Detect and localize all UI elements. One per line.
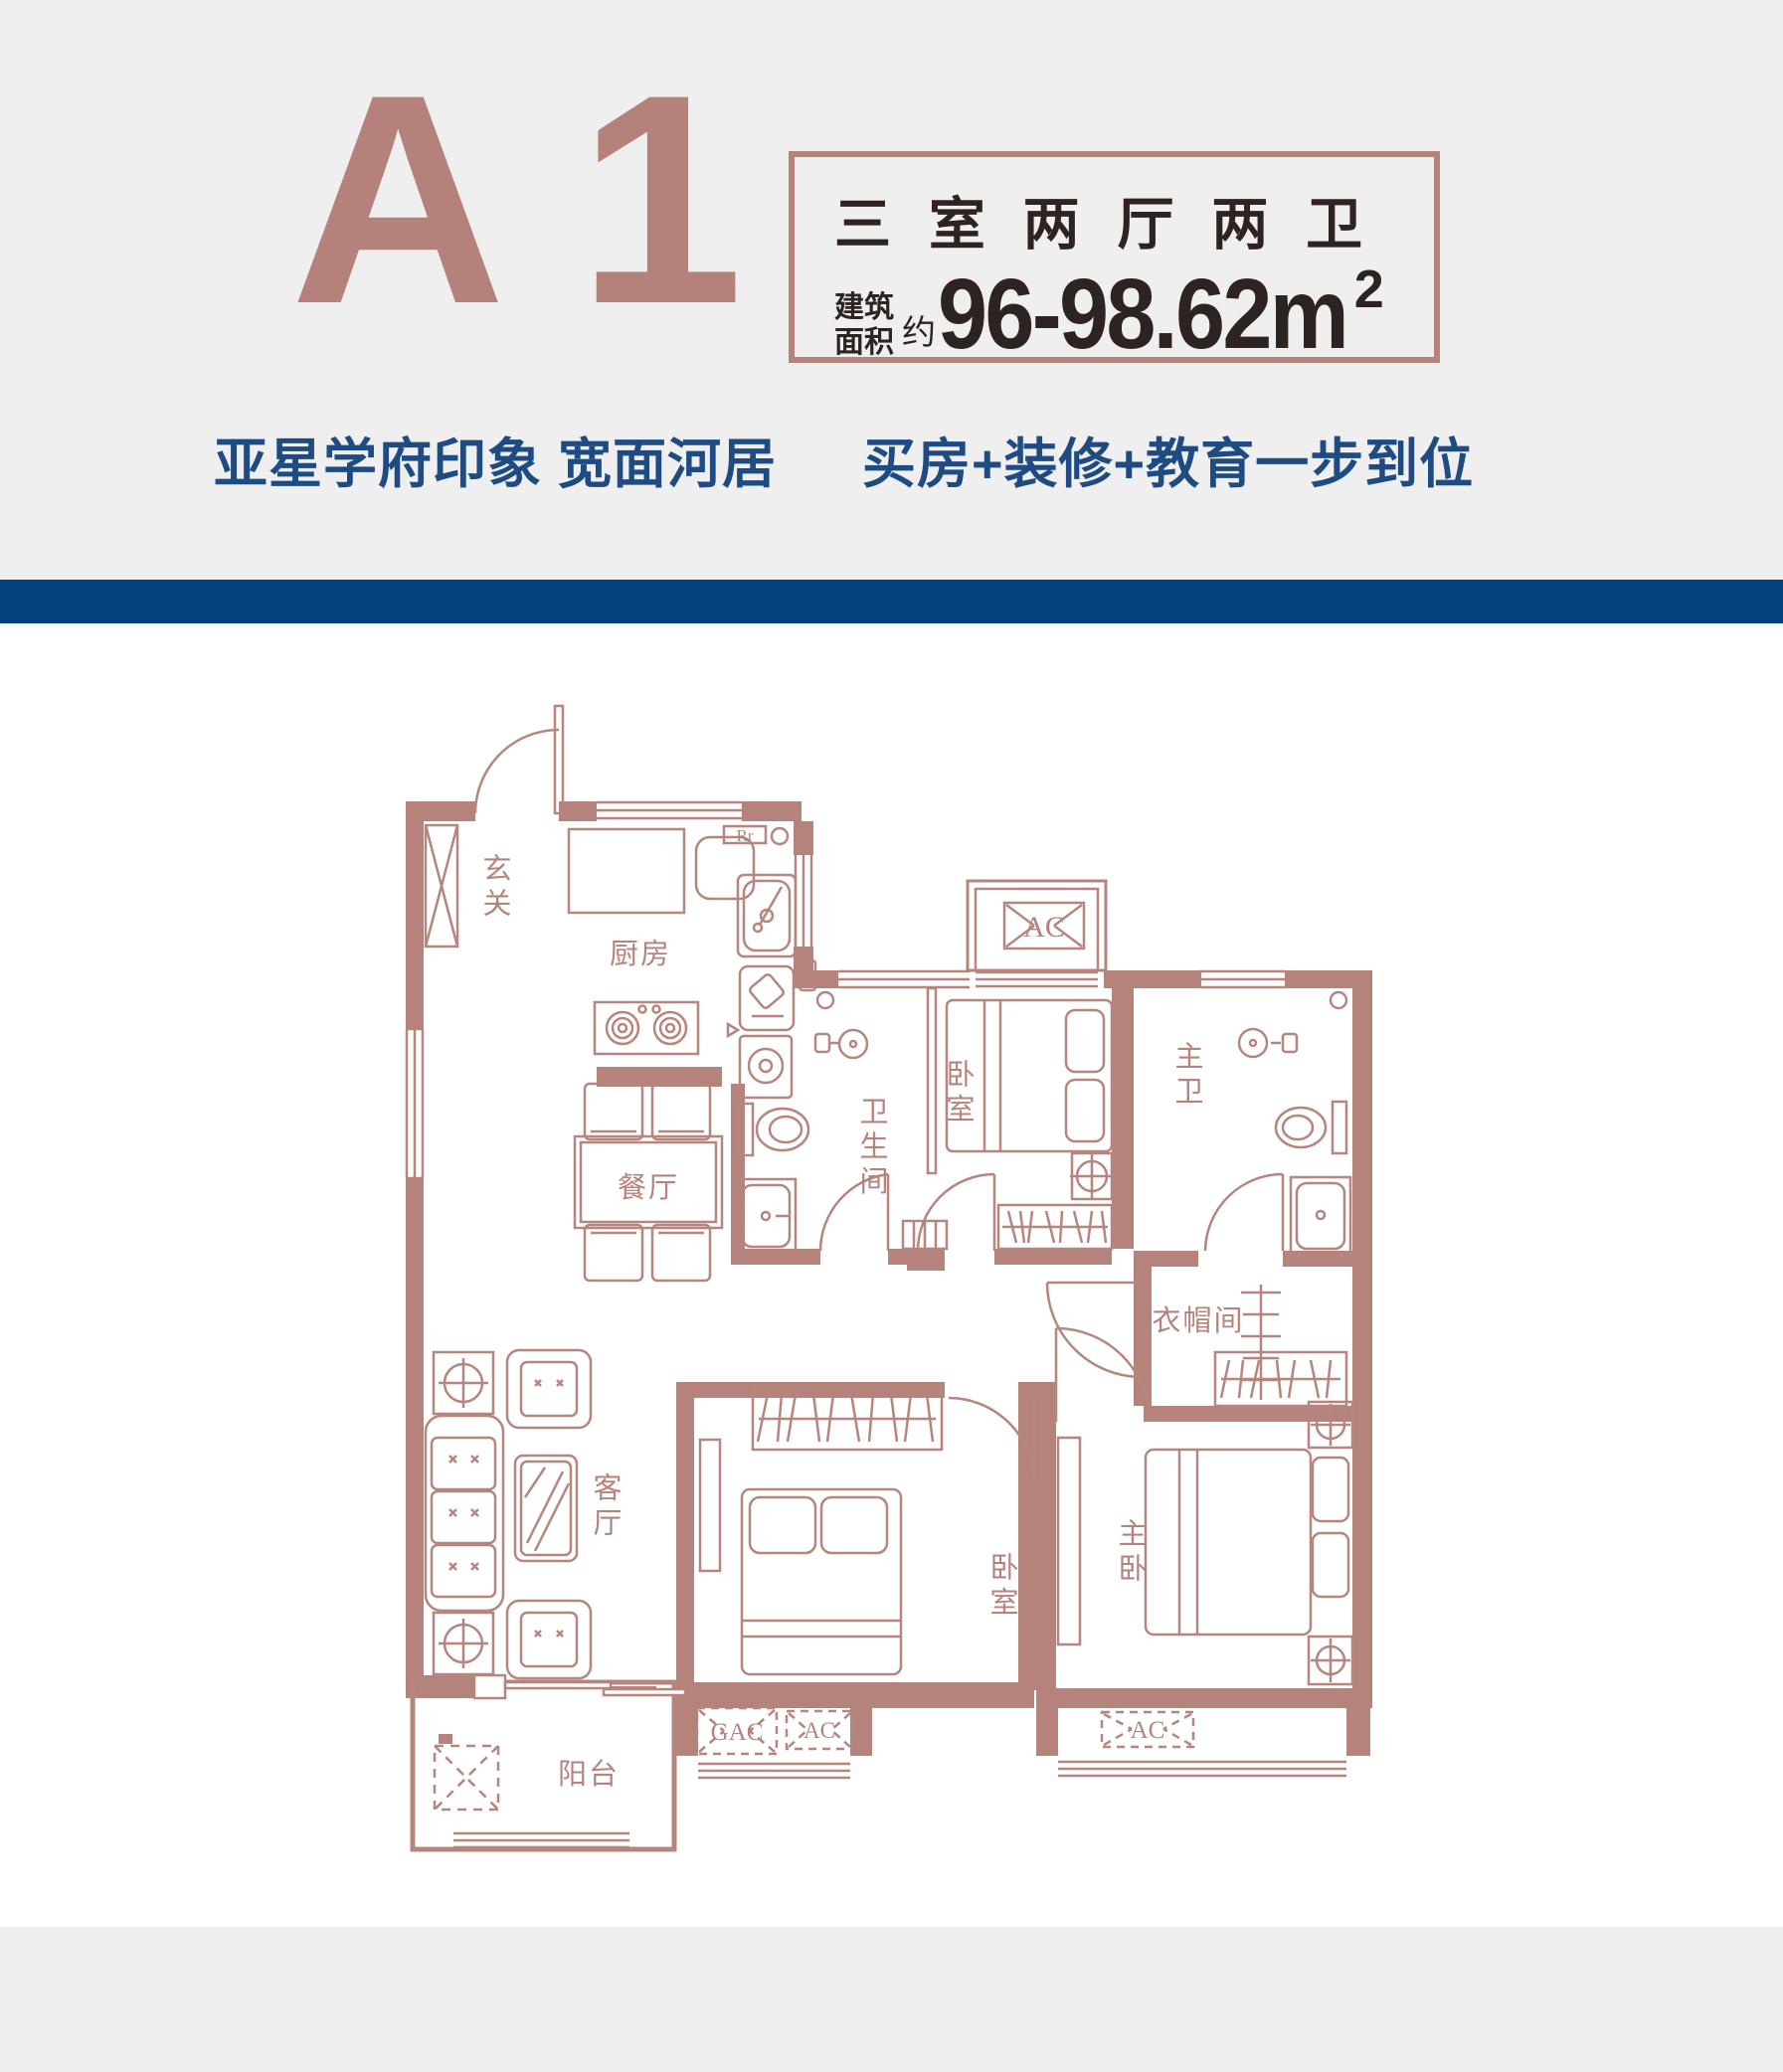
room-label-living: 客厅 — [584, 1472, 625, 1542]
ac-mid-label: AC — [803, 1718, 835, 1743]
tagline-right: 买房+装修+教育一步到位 — [862, 420, 1474, 498]
floor-plan-area: AC GAC AC AC Rr 玄关 厨房 餐厅 卫生间 卧室 主卫 衣帽间 客… — [0, 623, 1783, 1927]
ac-right-label: AC — [1131, 1717, 1165, 1744]
room-label-bathroom: 卫生间 — [850, 1097, 892, 1201]
floor-plan-svg: AC GAC AC AC Rr — [0, 623, 1783, 1927]
area-line: 建筑 面积 约 96-98.62m 2 — [834, 262, 1434, 360]
tagline-left: 亚星学府印象 宽面河居 — [214, 420, 777, 498]
room-label-entry: 玄关 — [473, 853, 515, 923]
area-superscript: 2 — [1354, 262, 1384, 316]
spec-box: 三 室 两 厅 两 卫 建筑 面积 约 96-98.62m 2 — [789, 151, 1440, 363]
area-approx: 约 — [902, 305, 936, 354]
room-label-bedroom-top: 卧室 — [937, 1059, 979, 1128]
fridge-label: Rr — [737, 826, 754, 845]
area-label: 建筑 面积 — [834, 290, 894, 360]
tagline: 亚星学府印象 宽面河居 买房+装修+教育一步到位 — [214, 420, 1474, 498]
room-label-bedroom-bottom: 卧室 — [981, 1552, 1022, 1622]
header-section: A 1 三 室 两 厅 两 卫 建筑 面积 约 96-98.62m 2 亚星学府… — [0, 0, 1783, 580]
divider-bar — [0, 580, 1783, 623]
room-label-closet: 衣帽间 — [1152, 1297, 1244, 1339]
room-type-text: 三 室 两 厅 两 卫 — [834, 179, 1434, 260]
ac-top-label: AC — [1023, 911, 1065, 944]
duct-shaft — [426, 825, 457, 947]
room-label-master-bedroom: 主卧 — [1109, 1518, 1151, 1588]
bedroom-bottom-furniture — [700, 1388, 1034, 1674]
balcony-structure — [413, 1675, 685, 1849]
room-label-dining: 餐厅 — [618, 1164, 679, 1206]
footer-band — [0, 1927, 1783, 2072]
entry-door — [475, 706, 563, 813]
master-bedroom-furniture — [1056, 1328, 1352, 1684]
gac-label: GAC — [711, 1719, 764, 1746]
unit-type-label: A 1 — [290, 50, 744, 348]
master-bath-fixtures — [1205, 992, 1350, 1255]
kitchen-fixtures — [569, 826, 815, 1098]
room-label-master-bath: 主卫 — [1165, 1041, 1207, 1111]
room-label-kitchen: 厨房 — [610, 931, 671, 972]
area-value: 96-98.62m — [938, 268, 1346, 360]
room-label-balcony: 阳台 — [558, 1751, 620, 1793]
